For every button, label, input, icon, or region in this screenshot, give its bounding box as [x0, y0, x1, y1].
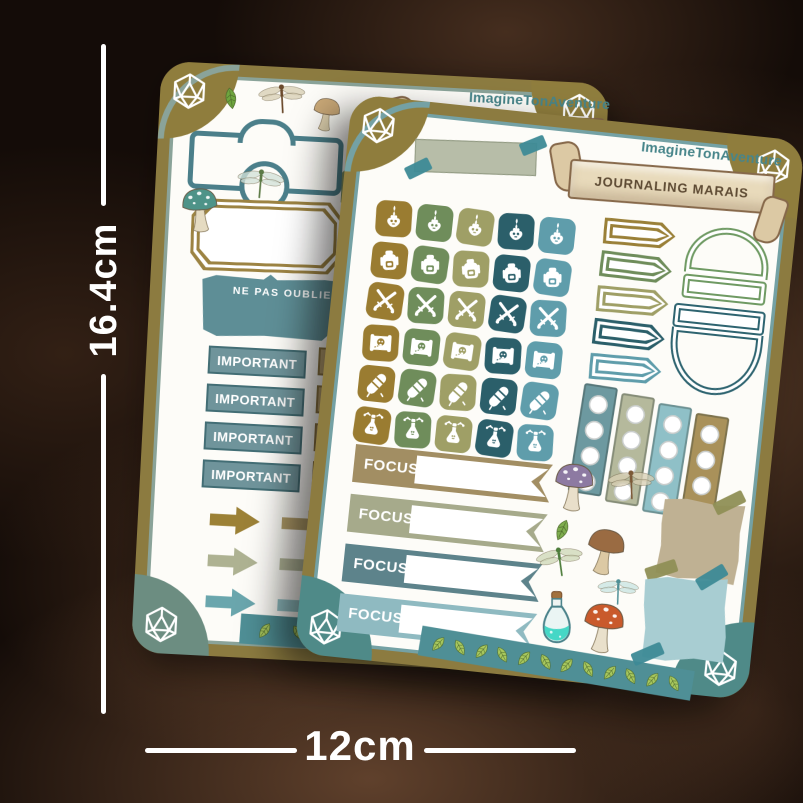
potion-sprout-icon: [516, 423, 554, 461]
film-strip-hole: [695, 449, 717, 471]
potion-sprout-icon: [474, 418, 515, 459]
film-strip-hole: [587, 394, 609, 416]
important-badge: IMPORTANT: [202, 459, 301, 492]
potion-sprout-icon: [352, 405, 393, 446]
focus-bar-sticker: FOCUS: [342, 543, 543, 601]
film-strip-hole: [691, 475, 713, 497]
leaf-icon: [663, 671, 685, 695]
leaf-icon: [253, 618, 276, 642]
leaf-icon: [469, 639, 493, 663]
backpack-icon: [452, 250, 490, 288]
dragonfly-brown-sticker: [253, 80, 311, 117]
treasure-map-icon: [442, 331, 483, 372]
treasure-map-icon: [362, 323, 400, 361]
width-dimension-label: 12cm: [300, 722, 420, 770]
pennant-label-sticker: [588, 353, 662, 385]
leaf-icon: [640, 667, 664, 691]
treasure-map-icon: [484, 336, 522, 374]
leaf-icon: [577, 657, 599, 681]
treasure-map-icon: [402, 327, 442, 367]
arrow-right-icon: [207, 545, 259, 579]
dome-bowl: [665, 326, 763, 399]
crossed-swords-icon: [407, 287, 445, 325]
important-badge: IMPORTANT: [206, 383, 305, 416]
crossed-swords-icon: [529, 299, 567, 337]
leaf-icon: [492, 642, 514, 666]
potion-sprout-icon: [434, 414, 474, 454]
height-dimension-line-top: [101, 44, 106, 206]
sheet-corner: [131, 574, 213, 656]
flame-icon: [375, 200, 413, 238]
tape-piece: [519, 135, 548, 157]
film-strip-hole: [699, 424, 721, 446]
mushroom-tan-sticker: [308, 91, 344, 137]
width-dimension-line-left: [145, 748, 297, 753]
paper-scrap-teal: [639, 573, 729, 665]
pennant-label-sticker: [592, 318, 667, 353]
important-badge: IMPORTANT: [204, 421, 303, 454]
pennant-label-sticker: [595, 285, 669, 317]
width-dimension-line-right: [424, 748, 576, 753]
collection-title: JOURNALING MARAIS: [594, 173, 749, 200]
focus-bar-sticker: FOCUS: [347, 494, 548, 552]
dragonfly-sage-sticker: [228, 163, 293, 202]
product-mockup: JOURNALING MARAIS ImagineTonAventure NE …: [0, 0, 803, 803]
washi-tape-sticker: [414, 139, 537, 176]
arrow-right-icon: [209, 504, 261, 538]
backpack-icon: [410, 244, 451, 285]
bedroll-icon: [397, 368, 438, 409]
leaf-icon: [512, 646, 536, 670]
bedroll-icon: [519, 381, 560, 422]
film-strip-hole: [662, 414, 684, 436]
leaf-icon: [449, 635, 471, 659]
leaf-sticker: [220, 85, 242, 112]
bedroll-icon: [479, 377, 519, 417]
leaf-icon: [534, 649, 556, 673]
mushroom-red-sticker: [574, 597, 632, 658]
film-strip-hole: [658, 439, 680, 461]
dome-label-sticker: [665, 303, 762, 402]
flame-icon: [455, 207, 496, 248]
crossed-swords-icon: [447, 290, 487, 330]
mushroom-purple-sticker: [548, 459, 599, 516]
pennant-label-sticker: [599, 250, 674, 285]
flame-icon: [415, 203, 455, 243]
backpack-icon: [532, 257, 573, 298]
flame-icon: [497, 213, 535, 251]
potion-sprout-icon: [394, 410, 432, 448]
film-strip-hole: [621, 429, 643, 451]
leaf-icon: [427, 631, 451, 655]
flame-icon: [537, 216, 577, 256]
pennant-label-sticker: [603, 217, 677, 249]
film-strip-hole: [583, 420, 605, 442]
film-strip-hole: [625, 404, 647, 426]
sticker-sheet-front: JOURNALING MARAIS ImagineTonAventure FOC…: [294, 94, 803, 700]
height-dimension-label: 16.4cm: [80, 200, 128, 380]
bedroll-icon: [357, 364, 397, 404]
treasure-map-icon: [524, 340, 564, 380]
potion-bottle-sticker: [537, 590, 577, 650]
mushroom-teal-sticker: [179, 182, 222, 238]
important-badge: IMPORTANT: [207, 346, 306, 379]
backpack-icon: [370, 240, 410, 280]
corner-arc: [135, 574, 213, 582]
height-dimension-line-bottom: [101, 374, 106, 714]
leaf-small-sticker: [548, 515, 576, 545]
bedroll-icon: [439, 373, 477, 411]
crossed-swords-icon: [487, 294, 528, 335]
leaf-icon: [555, 653, 579, 677]
crossed-swords-icon: [365, 281, 406, 322]
banner-band: JOURNALING MARAIS: [567, 159, 776, 215]
dragonfly-tan-sticker: [603, 466, 660, 502]
leaf-icon: [598, 660, 622, 684]
backpack-icon: [492, 253, 532, 293]
frame-bump: [238, 118, 297, 146]
dragonfly-green-sticker: [529, 540, 591, 582]
leaf-icon: [620, 664, 642, 688]
